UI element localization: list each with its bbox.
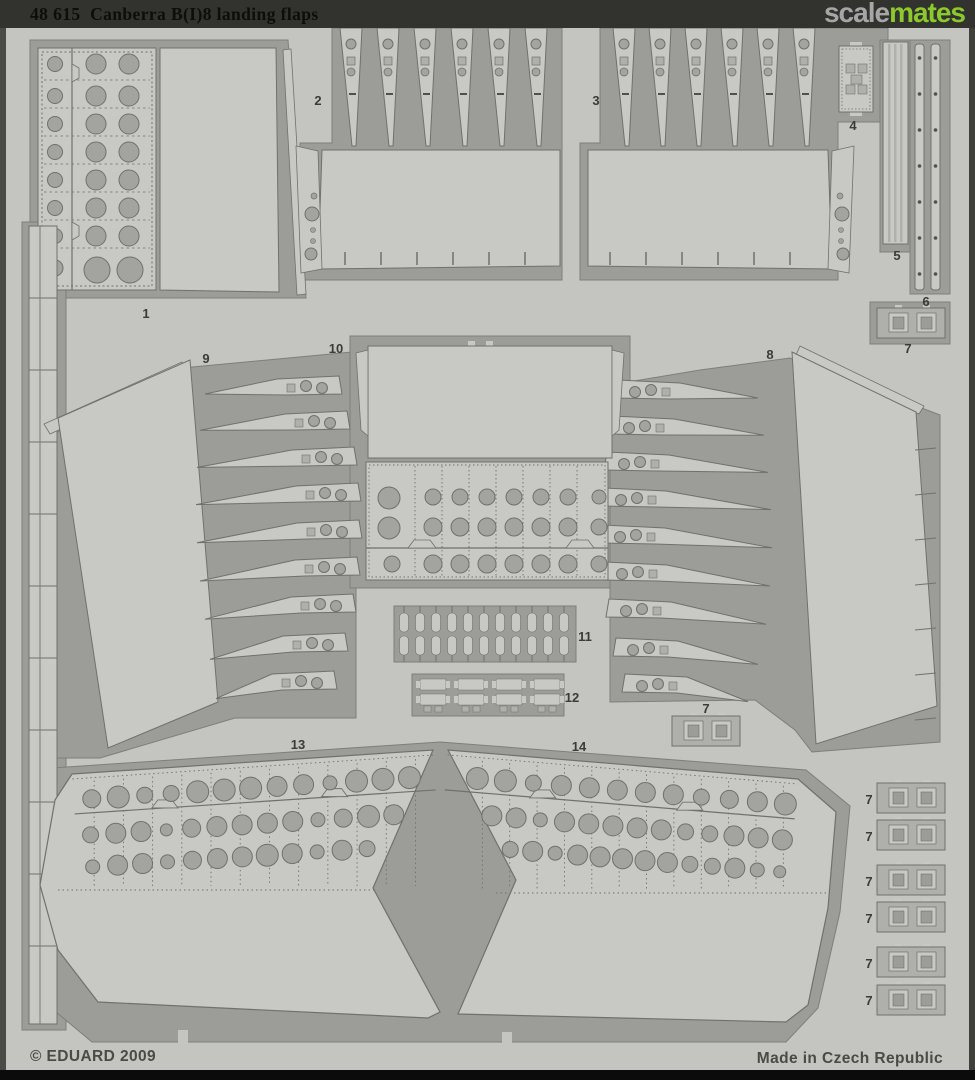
part-label-5: 5 [893,248,900,263]
part-label-7: 7 [702,701,709,716]
pe-sheet-photo: 12345678910111271314777777 48 615 Canber… [0,0,975,1080]
scalemates-logo: scalemates [824,0,965,29]
part-1 [38,48,306,295]
part-label-7: 7 [865,829,872,844]
part-label-14: 14 [572,739,587,754]
part-5 [883,42,908,244]
made-in-text: Made in Czech Republic [757,1050,943,1068]
pe-sheet-drawing: 12345678910111271314777777 [0,0,975,1080]
part-label-7: 7 [865,792,872,807]
part-label-13: 13 [291,737,305,752]
part-label-7: 7 [865,874,872,889]
part-label-12: 12 [565,690,579,705]
part-label-3: 3 [592,93,599,108]
bottom-bar [0,1070,975,1080]
logo-scale: scale [824,0,889,28]
part-label-8: 8 [766,347,773,362]
part-label-7: 7 [865,911,872,926]
part-label-2: 2 [314,93,321,108]
part-label-7: 7 [865,993,872,1008]
part-label-7: 7 [904,341,911,356]
part-label-10: 10 [329,341,343,356]
copyright-text: © EDUARD 2009 [30,1048,156,1066]
part-label-6: 6 [922,294,929,309]
part-label-11: 11 [578,629,592,644]
part-label-9: 9 [202,351,209,366]
part-label-7: 7 [865,956,872,971]
logo-mates: mates [889,0,965,28]
part-label-4: 4 [849,118,857,133]
part-4 [839,42,873,116]
sheet-title: 48 615 Canberra B(I)8 landing flaps [30,0,319,29]
part-label-1: 1 [142,306,149,321]
